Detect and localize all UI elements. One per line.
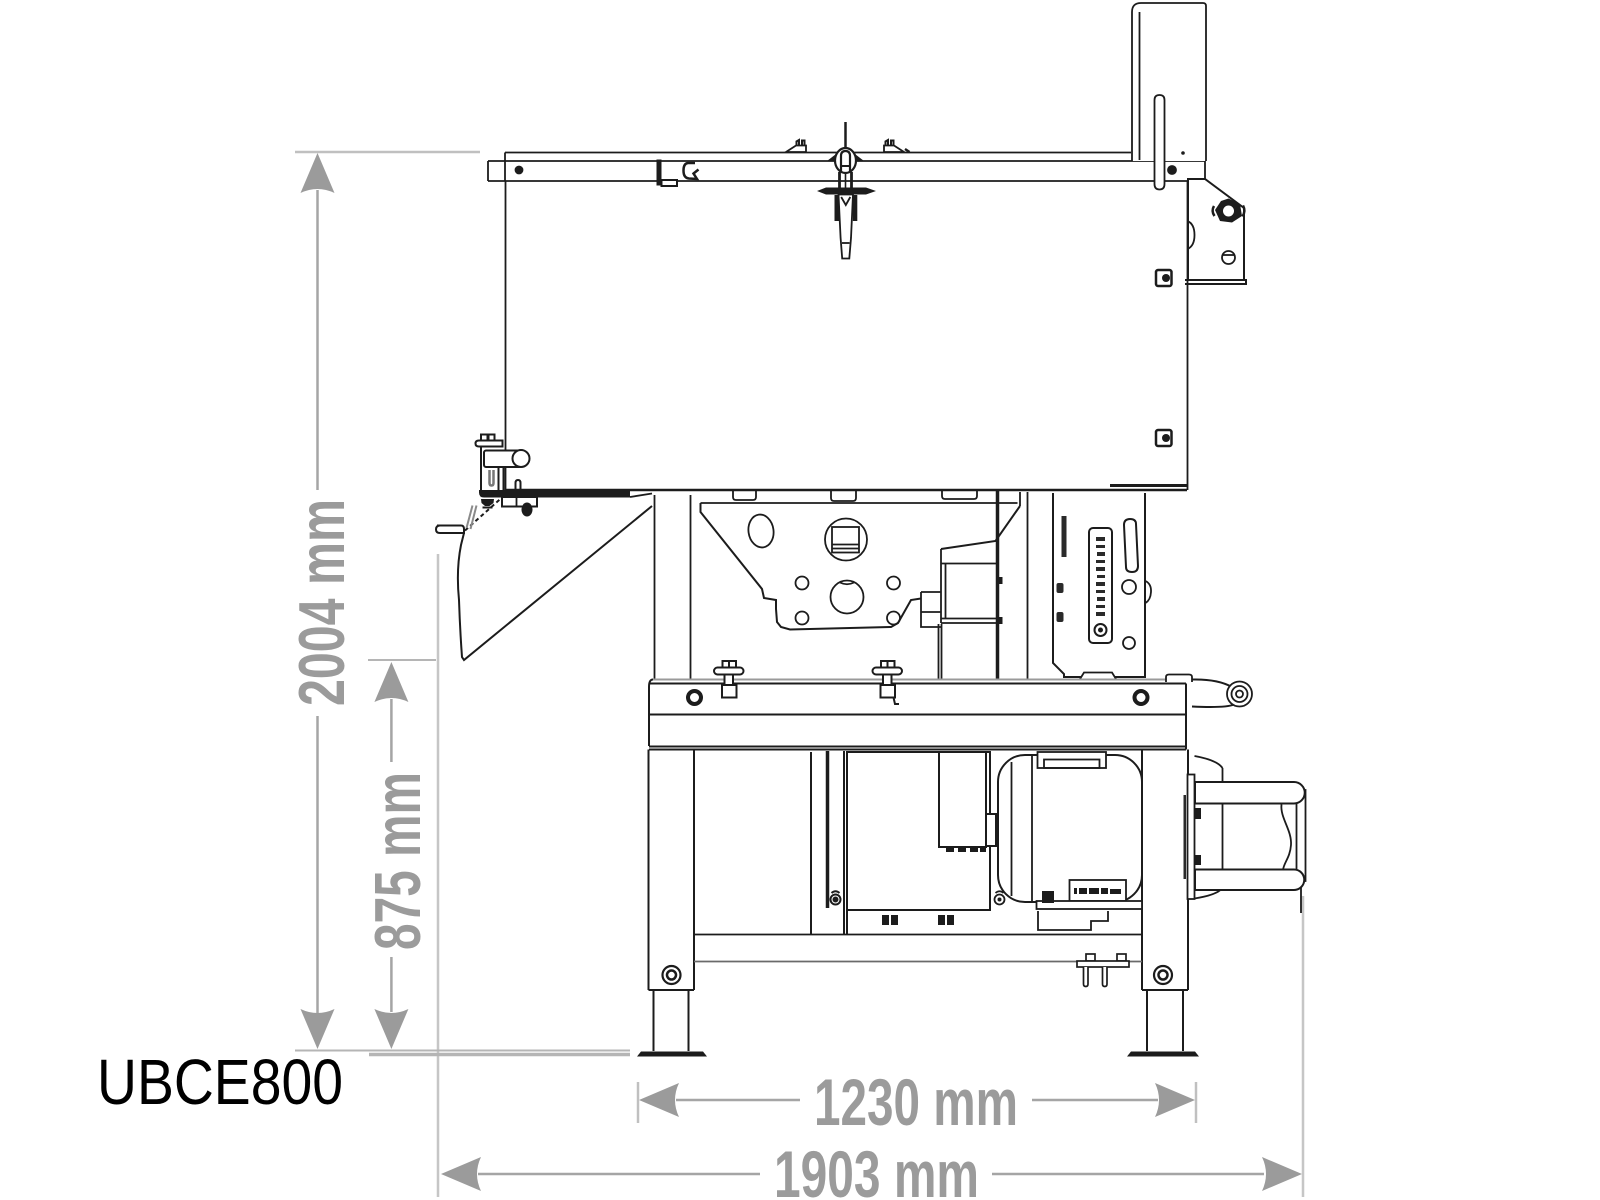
svg-text:875 mm: 875 mm bbox=[361, 772, 434, 950]
svg-text:UBCE800: UBCE800 bbox=[97, 1046, 343, 1118]
svg-text:1230 mm: 1230 mm bbox=[814, 1065, 1018, 1139]
svg-text:1903 mm: 1903 mm bbox=[774, 1137, 979, 1200]
svg-text:2004 mm: 2004 mm bbox=[285, 499, 358, 706]
